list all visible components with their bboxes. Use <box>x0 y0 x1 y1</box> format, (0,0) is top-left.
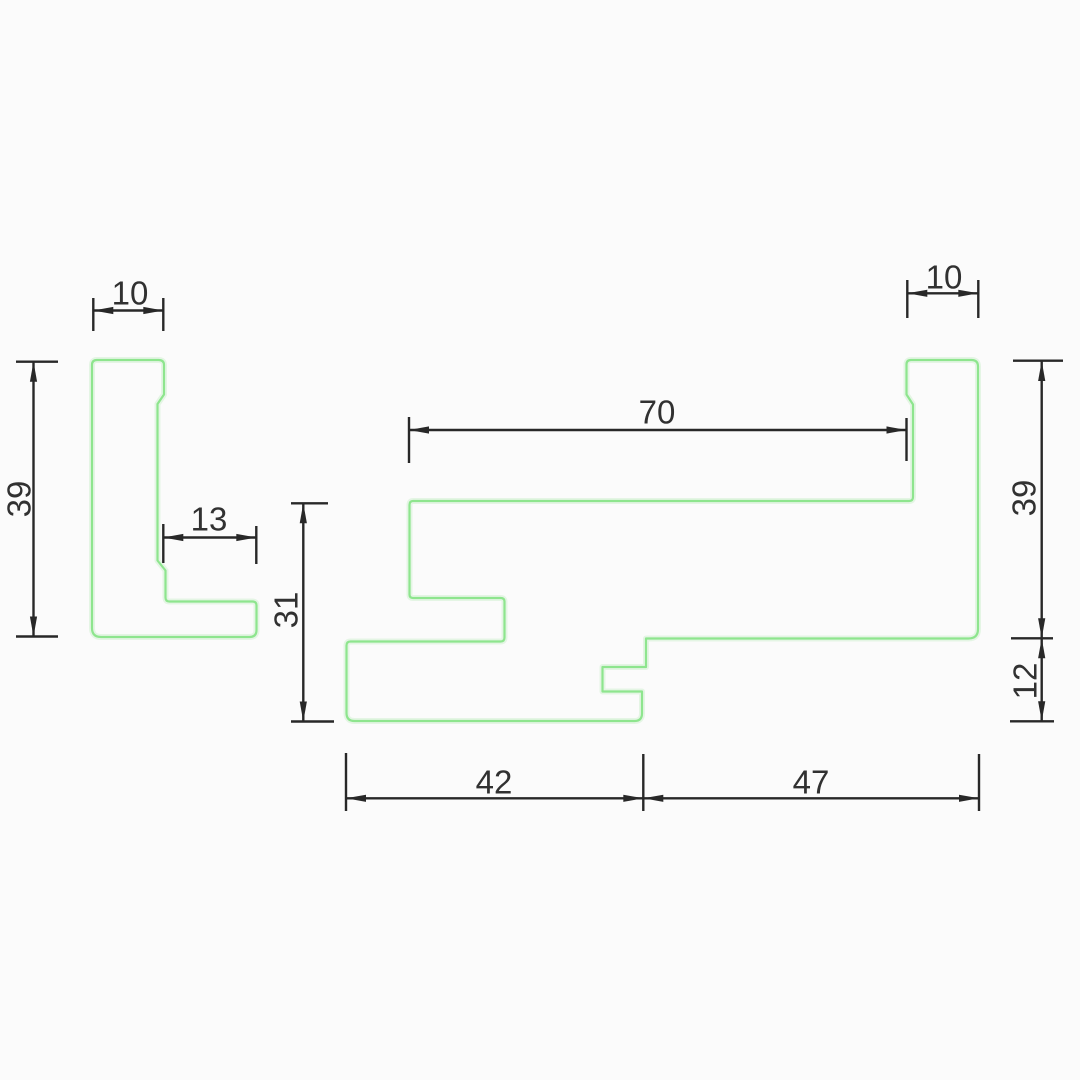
dimension-label-right-height: 39 <box>1006 480 1043 517</box>
dimension-label-left-bar-width: 10 <box>112 275 149 312</box>
dimension-label-bottom-right-width: 47 <box>793 764 830 801</box>
dimension-label-left-foot-width: 13 <box>191 501 228 538</box>
dimension-label-right-bar-width: 10 <box>926 259 963 296</box>
dimension-label-right-lip-height: 12 <box>1007 663 1044 700</box>
profile-drawing-svg: 10391331701039124247 <box>0 0 1080 1080</box>
drawing-page: 10391331701039124247 <box>0 0 1080 1080</box>
dimension-label-left-height: 39 <box>1 481 38 518</box>
dimension-label-step-height: 31 <box>268 592 305 629</box>
drawing-background <box>0 0 1080 1080</box>
dimension-label-top-width: 70 <box>639 394 676 431</box>
dimension-label-bottom-left-width: 42 <box>476 764 513 801</box>
